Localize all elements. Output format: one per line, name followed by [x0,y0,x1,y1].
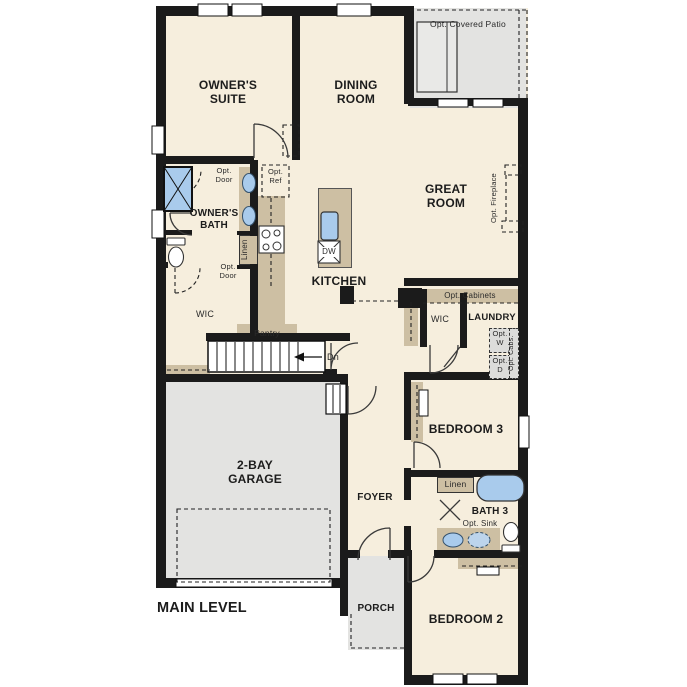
wall-hall-right-1 [404,380,411,440]
room-label-bedroom2: BEDROOM 2 [416,612,516,626]
room-label-great: GREAT ROOM [416,182,476,210]
room-label-wic-right: WIC [419,314,461,325]
label-opt-sink: Opt. Sink [456,519,504,528]
floor-plan: OWNER'S SUITE DINING ROOM GREAT ROOM KIT… [0,0,687,687]
wall-hall-corner [398,288,422,308]
label-opt-door-upper: Opt. Door [207,167,241,185]
label-opt-ref: Opt. Ref [262,168,289,186]
wall-right [518,98,528,685]
room-label-kitchen: KITCHEN [299,274,379,288]
wall-hall-right-3 [404,526,411,552]
wall-bath-kitchen-2 [250,264,258,336]
room-label-bath3: BATH 3 [462,506,518,518]
room-label-dining: DINING ROOM [326,78,386,106]
wall-left [156,6,166,588]
wall-foyer-bottom-2 [388,550,410,558]
room-label-laundry: LAUNDRY [463,312,521,323]
label-dishwasher: DW [318,247,340,256]
wall-top [156,6,414,16]
bath3-vanity [437,528,500,552]
room-label-patio: Opt. Covered Patio [428,19,508,29]
wall-bedroom2-top-2 [434,550,528,558]
wall-wic-top [156,262,168,268]
room-label-foyer: FOYER [347,492,403,504]
room-fill-hall-foyer [345,300,408,560]
room-label-owners-bath: OWNER'S BATH [184,208,244,232]
room-label-pantry: Pantry [240,328,294,338]
wall-garage-bottom [160,578,348,588]
wall-bedroom2-bottom [404,675,528,685]
wall-dining-patio [404,6,414,104]
wall-greatroom-bottom [404,278,528,286]
wall-suite-dining [292,10,300,160]
wall-stair-post [323,369,337,378]
wall-kitchen-hall-corner [340,286,354,304]
wall-bedroom2-left [404,558,412,685]
room-label-wic-left: WIC [183,309,227,320]
wall-bath-kitchen-1 [250,160,258,236]
room-label-bedroom3: BEDROOM 3 [418,422,514,436]
wall-suite-bottom [162,156,254,164]
room-label-porch: PORCH [352,603,400,615]
page-title: MAIN LEVEL [157,600,297,617]
label-stairs-dn: Dn [324,352,342,363]
kitchen-counter [258,196,285,324]
room-label-garage: 2-BAY GARAGE [220,458,290,486]
room-label-owners-suite: OWNER'S SUITE [188,78,268,106]
wall-garage-top [160,374,348,382]
label-opt-door-lower: Opt. Door [211,263,245,281]
wall-bedroom3-bath3 [404,470,528,477]
label-linen-hall: Linen [437,479,474,489]
wall-patio-bottom [408,98,528,106]
label-opt-cabinets: Opt. Cabinets [423,291,517,300]
wall-foyer-bottom-1 [340,550,360,558]
label-linen-bath: Linen [240,234,256,266]
label-opt-cabs: Opt. Cabs. [508,329,520,377]
label-opt-fireplace: Opt. Fireplace [490,167,502,229]
